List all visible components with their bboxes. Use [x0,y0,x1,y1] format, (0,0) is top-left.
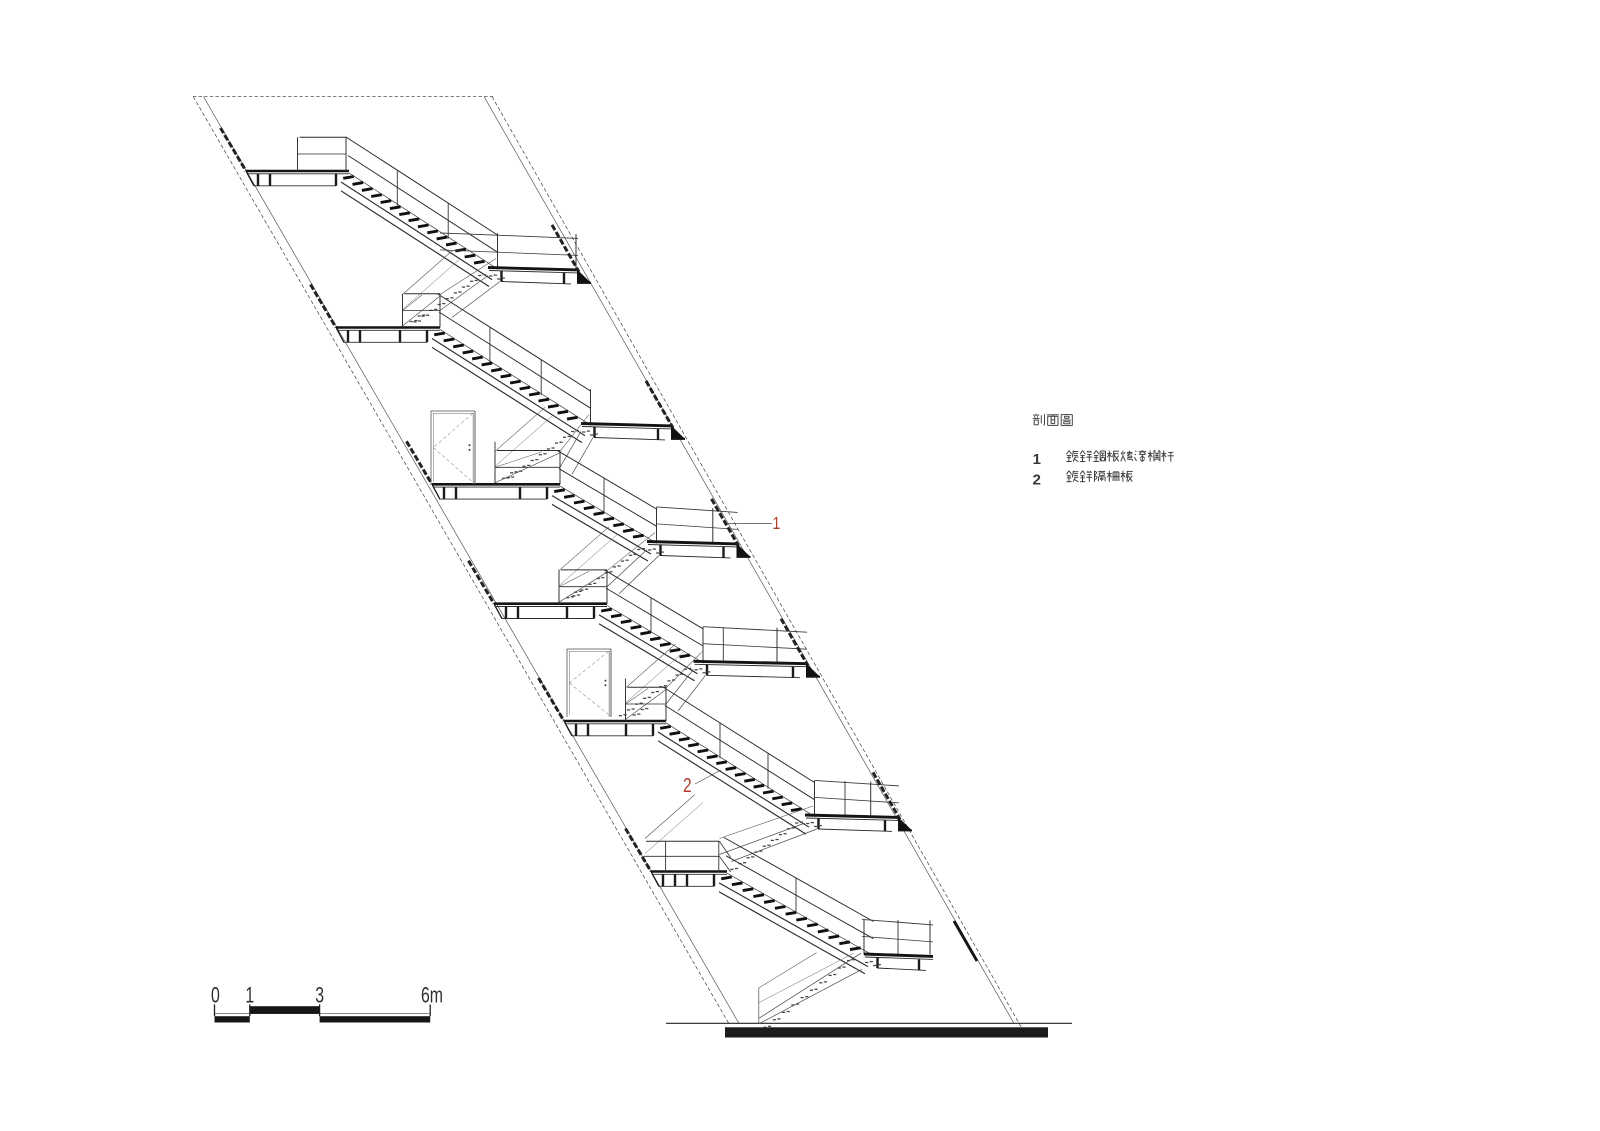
svg-text:2: 2 [1033,471,1041,488]
svg-text:1: 1 [1033,451,1042,468]
svg-text:6m: 6m [421,984,443,1008]
svg-text:1: 1 [773,513,781,533]
svg-text:0: 0 [211,984,220,1008]
svg-text:2: 2 [683,774,692,796]
